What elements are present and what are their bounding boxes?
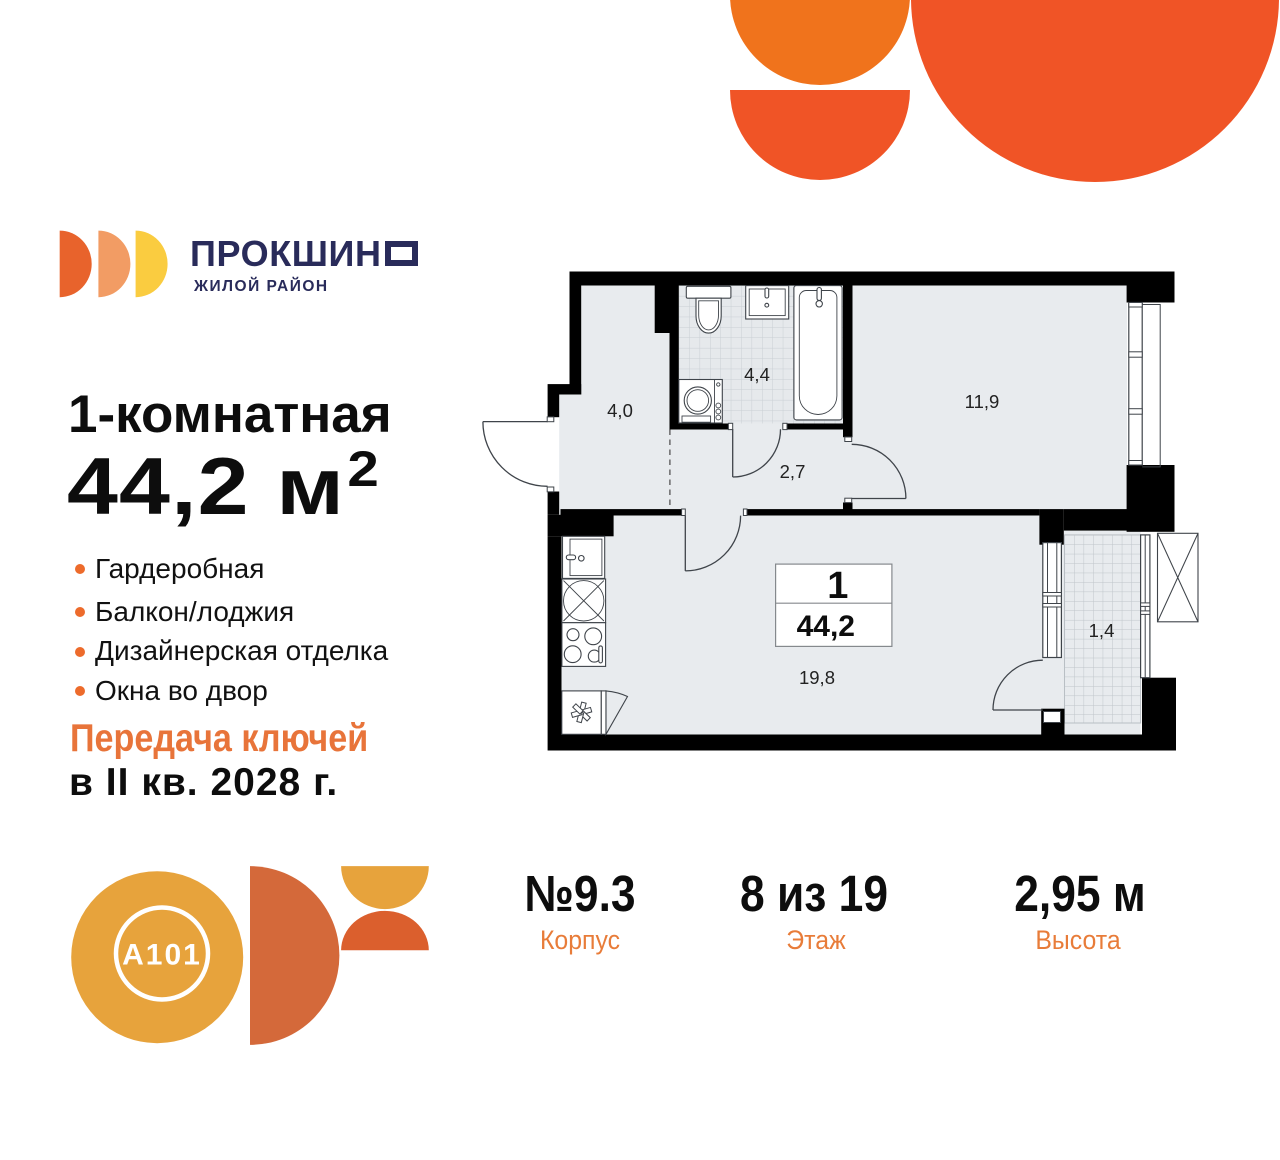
- svg-text:2,7: 2,7: [780, 461, 806, 482]
- svg-text:19,8: 19,8: [799, 667, 835, 688]
- svg-text:11,9: 11,9: [965, 391, 1000, 412]
- svg-text:1: 1: [827, 565, 848, 607]
- svg-text:4,4: 4,4: [744, 364, 770, 385]
- svg-text:44,2: 44,2: [797, 610, 855, 643]
- svg-text:A101: A101: [122, 939, 202, 972]
- svg-text:4,0: 4,0: [607, 400, 633, 421]
- svg-text:1,4: 1,4: [1089, 620, 1115, 641]
